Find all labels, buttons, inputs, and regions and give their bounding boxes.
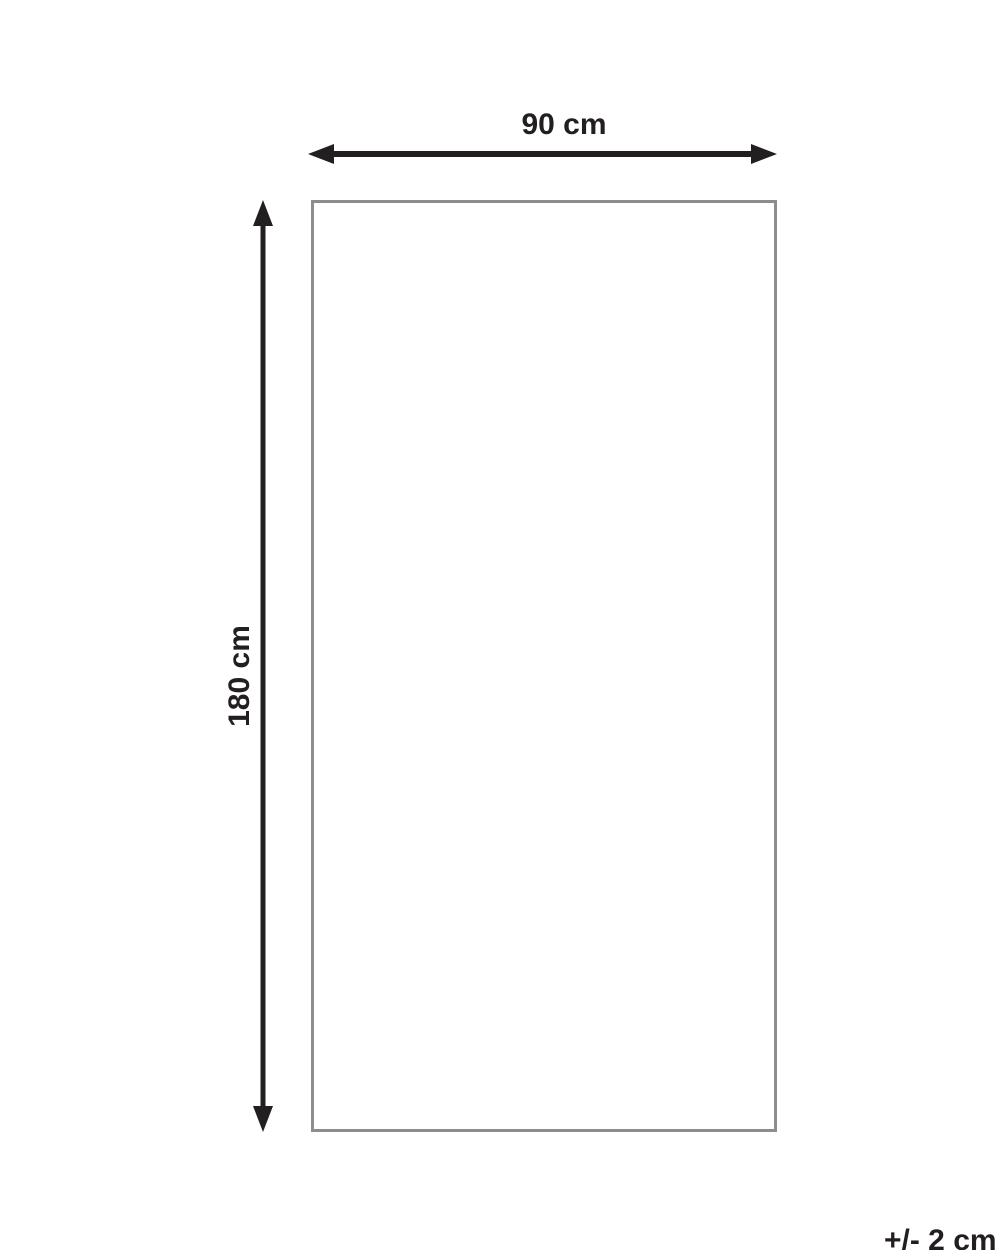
width-dimension-label: 90 cm: [414, 110, 714, 140]
dimension-diagram: 90 cm 180 cm +/- 2 cm: [0, 0, 1000, 1250]
vertical-dimension-arrow: [253, 200, 273, 1132]
product-outline-rectangle: [311, 200, 777, 1132]
arrow-shaft: [324, 151, 761, 157]
height-dimension-label: 180 cm: [225, 625, 255, 727]
tolerance-label: +/- 2 cm: [884, 1226, 997, 1250]
arrow-head-down-icon: [253, 1106, 273, 1132]
horizontal-dimension-arrow: [308, 144, 777, 164]
arrow-shaft: [261, 216, 266, 1116]
arrow-head-right-icon: [751, 144, 777, 164]
